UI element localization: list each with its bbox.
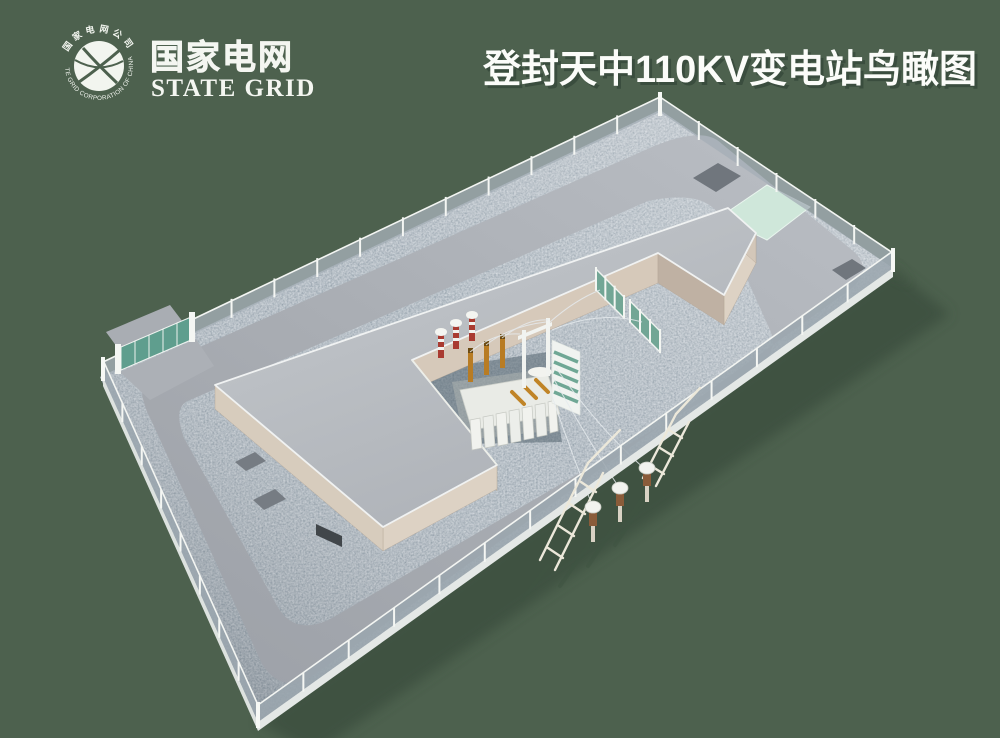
gate-pillar-right bbox=[189, 312, 195, 342]
gate-pillar-left bbox=[115, 344, 121, 374]
aerial-view-canvas: 国家电网公司 STATE GRID CORPORATION OF CHINA 国… bbox=[0, 0, 1000, 738]
logo-name-cn: 国家电网 bbox=[150, 39, 294, 77]
substation-rendering-page: 国家电网公司 STATE GRID CORPORATION OF CHINA 国… bbox=[0, 0, 1000, 738]
page-title: 登封天中110KV变电站鸟瞰图 登封天中110KV变电站鸟瞰图 bbox=[482, 49, 980, 94]
page-title-text: 登封天中110KV变电站鸟瞰图 bbox=[482, 49, 977, 91]
bay-green-screen bbox=[552, 340, 580, 415]
logo-name-en: STATE GRID bbox=[151, 75, 316, 102]
